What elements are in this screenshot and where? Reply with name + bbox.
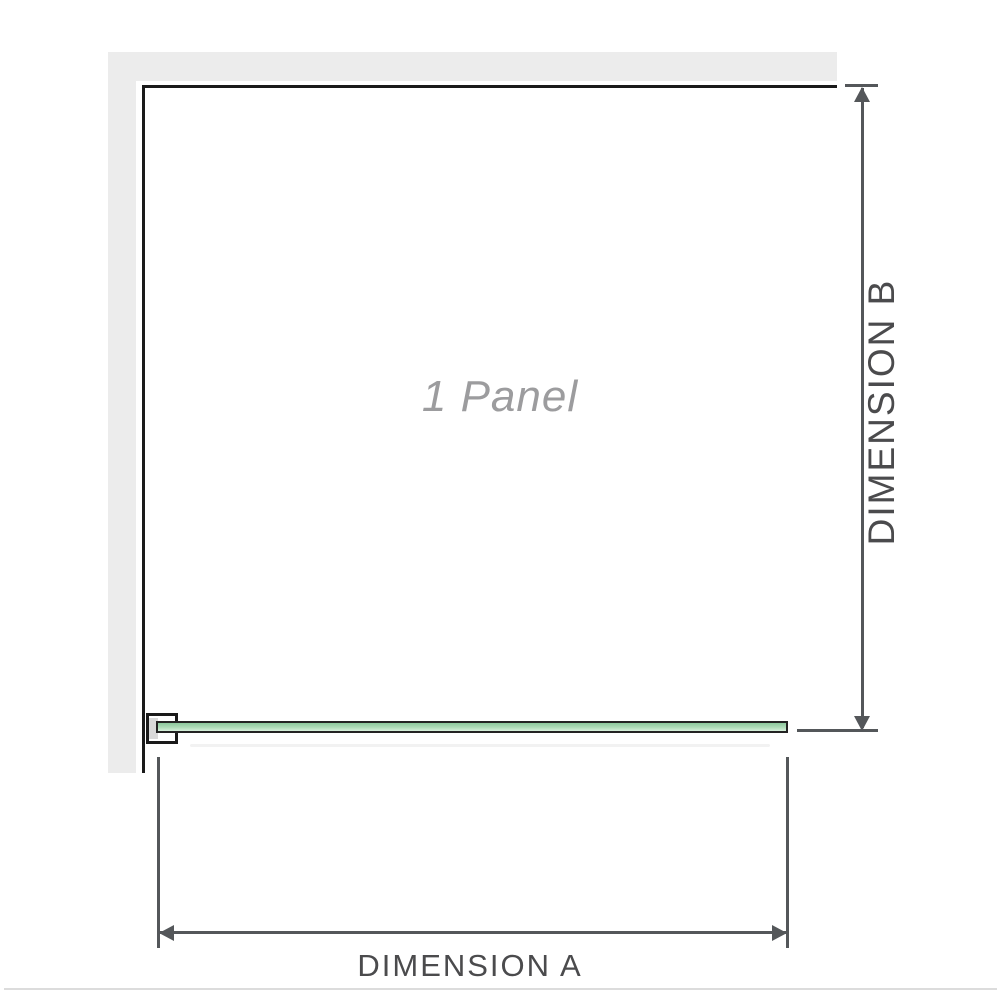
dimension-a-right-tick bbox=[786, 757, 789, 948]
glass-panel-bar bbox=[156, 721, 788, 733]
glass-panel-shadow bbox=[190, 744, 770, 747]
dimension-a-line bbox=[160, 931, 787, 934]
arrow-down-icon bbox=[854, 716, 870, 731]
panel-frame-left-line bbox=[142, 85, 145, 773]
dimension-a-left-tick bbox=[157, 757, 160, 948]
dimension-a-label: DIMENSION A bbox=[357, 948, 582, 984]
arrow-right-icon bbox=[772, 925, 787, 941]
wall-top-band bbox=[108, 52, 837, 81]
dimension-b-label: DIMENSION B bbox=[861, 279, 903, 546]
wall-left-band bbox=[108, 52, 136, 773]
panel-label: 1 Panel bbox=[422, 372, 578, 422]
panel-frame-top-line bbox=[142, 85, 837, 88]
arrow-left-icon bbox=[159, 925, 174, 941]
arrow-up-icon bbox=[854, 87, 870, 102]
bottom-divider-line bbox=[4, 988, 997, 990]
panel-dimension-diagram: 1 Panel DIMENSION B DIMENSION A bbox=[0, 0, 1000, 1000]
